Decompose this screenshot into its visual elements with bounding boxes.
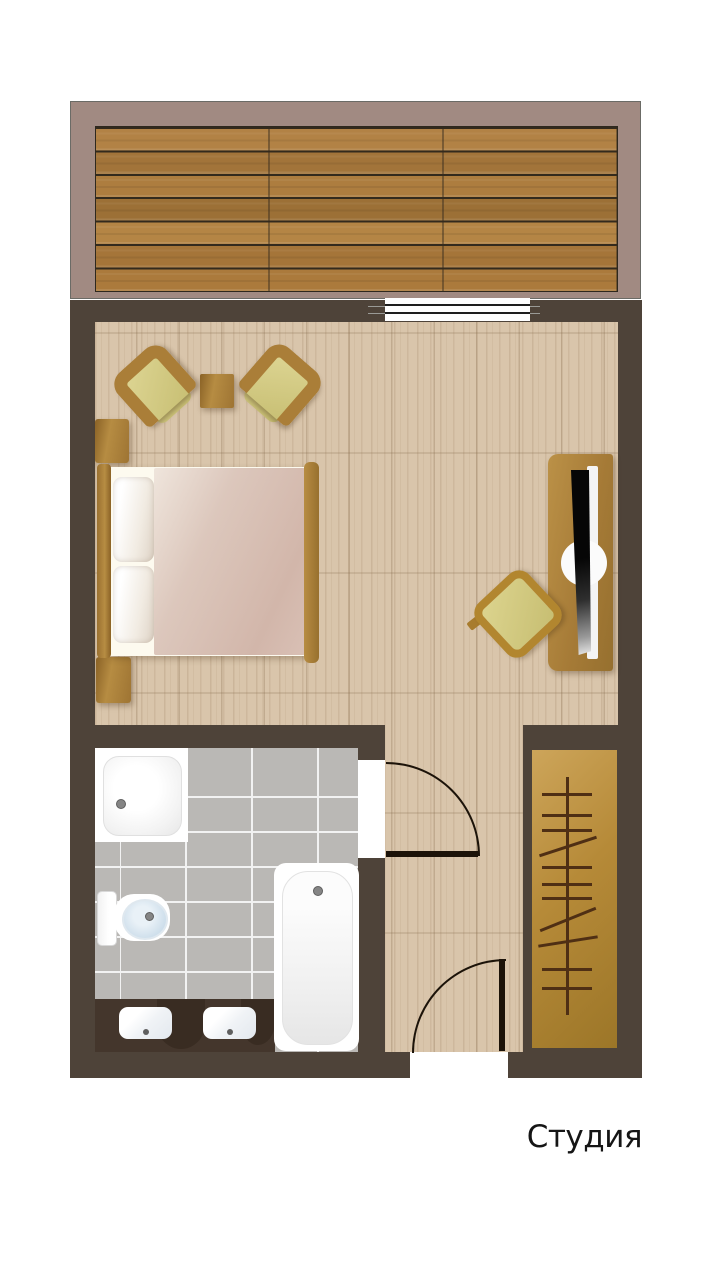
faucet-icon [227, 1029, 233, 1035]
room-label: Студия [442, 1119, 642, 1155]
hanger-icon [542, 814, 592, 817]
entrance-door-leaf [499, 959, 505, 1051]
bathtub-inner [282, 871, 353, 1045]
window-tick [368, 306, 385, 307]
balcony-deck [95, 126, 618, 292]
hanger-icon [542, 987, 592, 990]
window-tick [368, 313, 385, 314]
coffee-table [200, 374, 234, 408]
shower [95, 748, 188, 842]
sink [203, 1007, 256, 1039]
wardrobe-rail [566, 777, 569, 1015]
hanger-icon [542, 968, 592, 971]
bathroom-top-wall [95, 725, 385, 748]
bed-headboard [97, 464, 111, 658]
toilet-seat [122, 899, 168, 940]
balcony [70, 101, 641, 299]
bathtub-drain [313, 886, 323, 896]
vanity-counter [95, 999, 275, 1052]
bed-footboard [304, 462, 319, 663]
window-tick [530, 306, 540, 307]
nightstand [96, 657, 131, 703]
window-pane-line [385, 312, 530, 314]
window-pane-line [385, 304, 530, 306]
shower-tray [103, 756, 182, 836]
pillow [113, 477, 154, 562]
hanger-icon [542, 883, 592, 886]
faucet-icon [143, 1029, 149, 1035]
shower-drain [116, 799, 126, 809]
bathroom-door-opening [358, 760, 385, 858]
wardrobe [532, 750, 617, 1048]
pillow [113, 566, 154, 643]
bed-blanket [154, 468, 305, 655]
window-tick [530, 313, 540, 314]
toilet-flush [145, 912, 154, 921]
nightstand [95, 419, 129, 463]
bathtub [274, 863, 359, 1051]
bathroom-door-leaf [386, 851, 478, 857]
window [385, 298, 530, 321]
hanger-icon [542, 829, 592, 832]
toilet [114, 894, 170, 941]
sink [119, 1007, 172, 1039]
entrance-door-opening [410, 1052, 508, 1078]
hanger-icon [542, 793, 592, 796]
hanger-icon [542, 866, 592, 869]
floor-plan: Студия [0, 0, 711, 1264]
hanger-icon [542, 897, 592, 900]
